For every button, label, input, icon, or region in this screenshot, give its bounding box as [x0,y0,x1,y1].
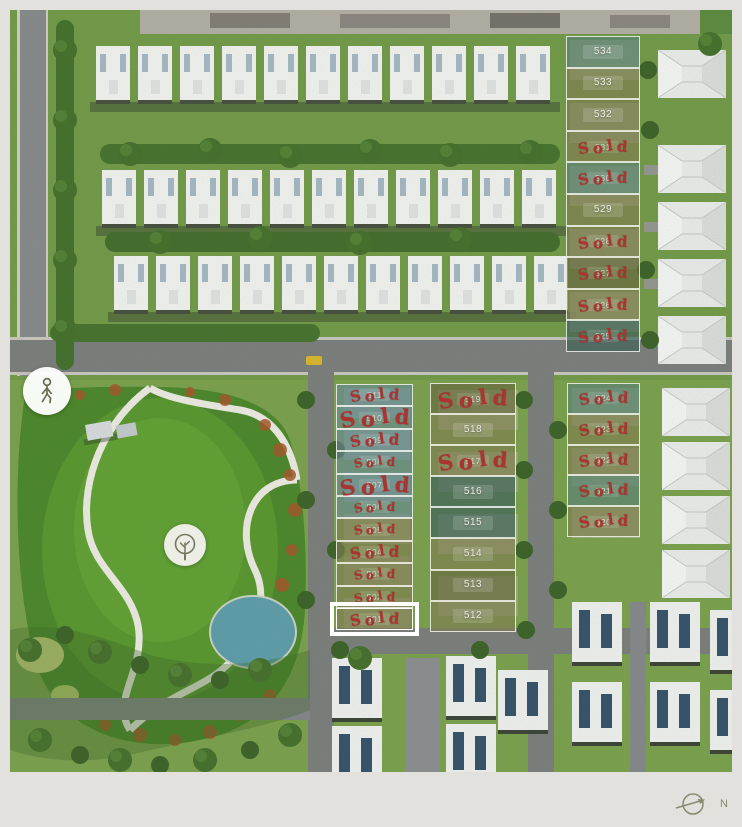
lot-number: 517 [457,455,489,467]
lot-group-middle-column: 519Sold518517Sold516515514513512 [430,383,516,632]
lot-number: 505 [359,524,391,536]
lot-number: 520 [588,516,620,528]
lot-504[interactable]: 504Sold [336,541,413,563]
lot-number: 513 [453,578,493,592]
lot-505[interactable]: 505Sold [336,518,413,540]
lot-527[interactable]: 527Sold [566,257,640,289]
lot-528[interactable]: 528Sold [566,226,640,258]
lot-506[interactable]: 506Sold [336,496,413,518]
park-marker[interactable] [164,524,206,566]
lot-number: 511 [359,389,390,401]
lot-508[interactable]: 508Sold [336,451,413,473]
lot-group-west-column: 511Sold510Sold509Sold508Sold507Sold506So… [336,384,413,630]
lot-number: 510 [359,412,391,424]
lot-517[interactable]: 517Sold [430,445,516,476]
lot-number: 528 [587,235,619,247]
lot-number: 525 [587,330,619,342]
lot-516[interactable]: 516 [430,476,516,507]
lot-number: 523 [588,423,620,435]
lot-514[interactable]: 514 [430,538,516,569]
lot-531[interactable]: 531Sold [566,131,640,163]
lot-533[interactable]: 533 [566,68,640,100]
lot-number: 524 [588,392,620,404]
park-tree-icon [164,524,206,566]
lot-515[interactable]: 515 [430,507,516,538]
lot-number: 527 [587,267,619,279]
lot-number: 526 [587,299,619,311]
lot-group-east-lower-column: 524Sold523Sold522Sold521Sold520Sold [567,383,640,537]
pedestrian-icon [23,367,71,415]
lot-number: 516 [453,485,493,499]
lot-number: 501 [359,613,391,625]
lot-number: 502 [359,591,391,603]
lot-group-east-upper-column: 534533532531Sold530Sold529528Sold527Sold… [566,36,640,352]
lot-509[interactable]: 509Sold [336,429,413,451]
lot-number: 534 [583,45,623,59]
lot-512[interactable]: 512 [430,601,516,632]
lot-501[interactable]: 501Sold [336,608,413,630]
lot-number: 509 [359,434,391,446]
lot-529[interactable]: 529 [566,194,640,226]
lot-number: 506 [359,501,391,513]
lot-534[interactable]: 534 [566,36,640,68]
lot-503[interactable]: 503Sold [336,563,413,585]
lot-number: 518 [453,423,493,437]
lot-number: 522 [588,454,620,466]
lot-overlays: 511Sold510Sold509Sold508Sold507Sold506So… [10,10,732,772]
lot-number: 530 [587,172,619,184]
masterplan-map: 511Sold510Sold509Sold508Sold507Sold506So… [10,10,732,772]
lot-number: 519 [457,393,489,405]
lot-526[interactable]: 526Sold [566,289,640,321]
lot-502[interactable]: 502Sold [336,586,413,608]
lot-number: 512 [453,609,493,623]
lot-523[interactable]: 523Sold [567,414,640,445]
lot-530[interactable]: 530Sold [566,162,640,194]
lot-519[interactable]: 519Sold [430,383,516,414]
lot-513[interactable]: 513 [430,570,516,601]
lot-number: 531 [587,141,619,153]
lot-number: 507 [359,479,391,491]
lot-525[interactable]: 525Sold [566,320,640,352]
pedestrian-marker[interactable] [23,367,71,415]
lot-532[interactable]: 532 [566,99,640,131]
lot-522[interactable]: 522Sold [567,445,640,476]
lot-518[interactable]: 518 [430,414,516,445]
lot-507[interactable]: 507Sold [336,474,413,496]
lot-number: 532 [583,108,623,122]
compass-arrow-icon [674,791,712,817]
lot-number: 533 [583,76,623,90]
lot-number: 521 [588,485,620,497]
page-background: 511Sold510Sold509Sold508Sold507Sold506So… [0,0,742,827]
lot-number: 508 [359,456,391,468]
compass: N [674,791,728,817]
lot-number: 503 [359,568,391,580]
lot-number: 514 [453,547,493,561]
lot-511[interactable]: 511Sold [336,384,413,406]
lot-number: 529 [583,203,623,217]
lot-number: 504 [359,546,391,558]
lot-524[interactable]: 524Sold [567,383,640,414]
lot-number: 515 [453,516,493,530]
lot-521[interactable]: 521Sold [567,475,640,506]
lot-520[interactable]: 520Sold [567,506,640,537]
lot-510[interactable]: 510Sold [336,406,413,428]
compass-north-label: N [720,798,728,810]
